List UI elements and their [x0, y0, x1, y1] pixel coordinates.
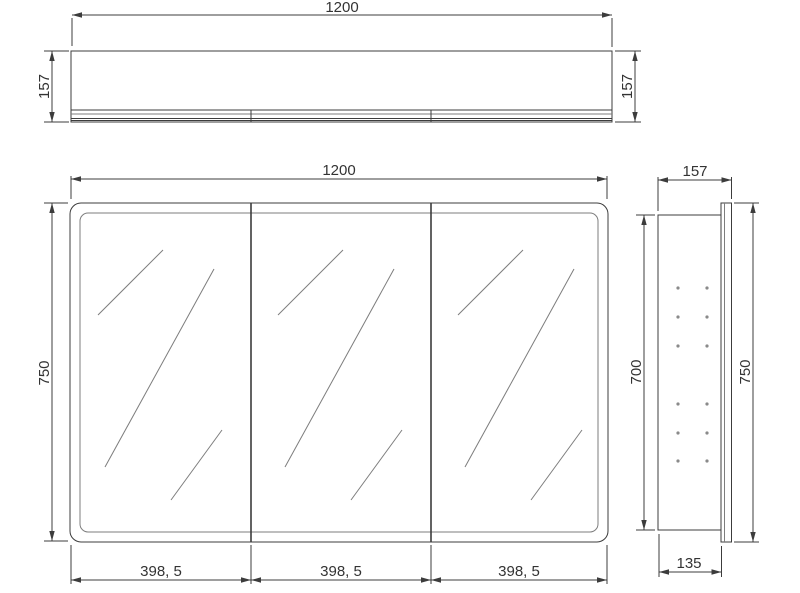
pin-hole: [705, 431, 708, 434]
dimension-top-depth-left: 157: [36, 51, 69, 122]
dimension-side-depth: 157: [658, 163, 732, 211]
shine-line: [278, 250, 343, 315]
dimension-label-door-width-3: 398, 5: [498, 563, 540, 580]
shine-line: [171, 430, 222, 500]
pin-hole: [676, 402, 679, 405]
side-carcass-outline: [658, 215, 721, 530]
shine-line: [98, 250, 163, 315]
pin-hole: [705, 286, 708, 289]
dimension-label-front-width: 1200: [322, 162, 355, 179]
shine-line: [105, 269, 214, 467]
shine-line: [531, 430, 582, 500]
side-door-outline: [721, 203, 732, 542]
mirror-shine-lines: [98, 250, 582, 500]
shine-line: [351, 430, 402, 500]
dimension-top-depth-right: 157: [615, 51, 641, 122]
dimension-front-width: 1200: [71, 162, 607, 199]
dimension-door-height: 750: [734, 203, 759, 542]
dimension-carcass-height: 700: [628, 215, 655, 530]
dimension-front-height: 750: [36, 203, 68, 541]
pin-hole: [705, 459, 708, 462]
pin-hole: [676, 344, 679, 347]
dimension-door-widths: 398, 5 398, 5 398, 5: [71, 545, 607, 584]
mirror-cabinet-technical-drawing: 1200 157 157: [0, 0, 800, 593]
pin-hole: [705, 315, 708, 318]
dimension-label-side-depth: 157: [682, 163, 707, 180]
dimension-label-door-width-2: 398, 5: [320, 563, 362, 580]
front-mirror-inset-outline: [80, 213, 598, 532]
dimension-label-carcass-depth: 135: [676, 555, 701, 572]
dimension-drawing-page: 1200 157 157: [0, 0, 800, 593]
dimension-label-door-height: 750: [737, 359, 754, 384]
dimension-label-top-width: 1200: [325, 0, 358, 16]
pin-hole: [676, 431, 679, 434]
shine-line: [458, 250, 523, 315]
dimension-label-carcass-height: 700: [628, 359, 645, 384]
dimension-label-top-depth-left: 157: [36, 74, 53, 99]
shine-line: [465, 269, 574, 467]
dimension-label-top-depth-right: 157: [619, 74, 636, 99]
shine-line: [285, 269, 394, 467]
top-view-door-edge: [71, 110, 612, 122]
pin-hole: [705, 344, 708, 347]
front-view: 1200 750 398, 5 398, 5 398, 5: [36, 162, 608, 584]
dimension-label-door-width-1: 398, 5: [140, 563, 182, 580]
top-view-carcass-outline: [71, 51, 612, 110]
pin-hole: [676, 315, 679, 318]
side-view: 157 700 750 135: [628, 163, 759, 577]
dimension-top-width: 1200: [72, 0, 612, 47]
top-view: 1200 157 157: [36, 0, 641, 122]
pin-hole: [676, 286, 679, 289]
dimension-label-front-height: 750: [36, 360, 53, 385]
dimension-carcass-depth: 135: [659, 534, 722, 577]
pin-hole: [705, 402, 708, 405]
pin-hole: [676, 459, 679, 462]
shelf-pin-holes: [676, 286, 708, 462]
